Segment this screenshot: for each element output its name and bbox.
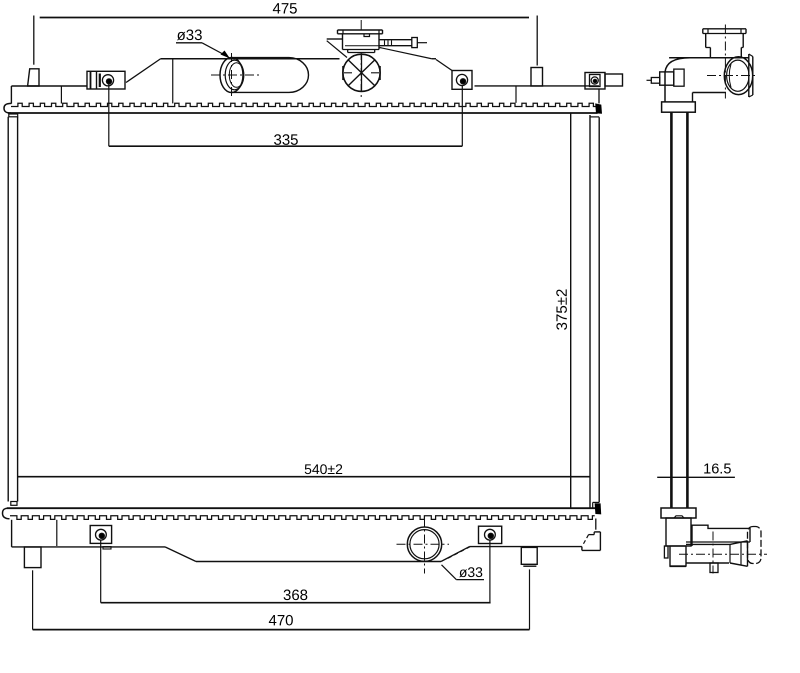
svg-text:540±2: 540±2 [304,461,343,477]
svg-text:368: 368 [283,587,308,604]
svg-text:375±2: 375±2 [554,289,571,331]
svg-text:475: 475 [272,0,297,17]
svg-text:470: 470 [268,612,293,629]
svg-text:335: 335 [273,132,298,149]
svg-text:ø33: ø33 [459,564,483,580]
svg-text:ø33: ø33 [177,27,203,44]
svg-text:16.5: 16.5 [703,461,731,477]
